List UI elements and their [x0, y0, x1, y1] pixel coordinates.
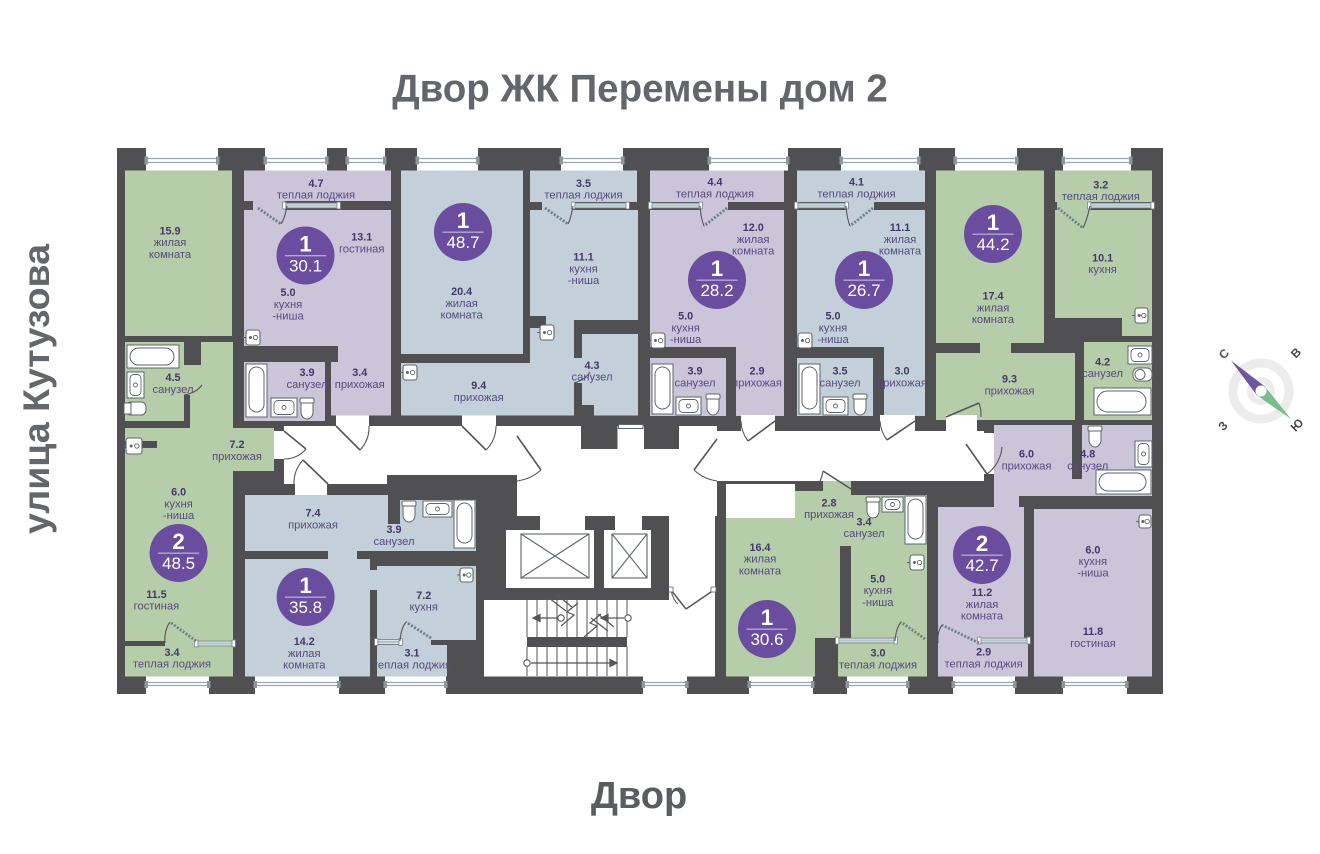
svg-text:4.4: 4.4 [707, 177, 722, 189]
svg-text:кухня: кухня [1079, 556, 1107, 568]
svg-text:3.2: 3.2 [1093, 179, 1108, 191]
svg-text:комната: комната [440, 310, 483, 322]
svg-text:1: 1 [457, 208, 469, 233]
svg-text:прихожая: прихожая [732, 377, 782, 389]
svg-text:кухня: кухня [409, 602, 437, 614]
svg-text:комната: комната [283, 660, 326, 672]
svg-text:13.1: 13.1 [351, 232, 372, 244]
svg-text:улица Кутузова: улица Кутузова [15, 243, 57, 534]
svg-text:комната: комната [961, 610, 1004, 622]
svg-text:20.4: 20.4 [451, 286, 472, 298]
svg-text:кухня: кухня [864, 585, 892, 597]
svg-text:30.6: 30.6 [750, 630, 783, 649]
svg-text:10.1: 10.1 [1092, 252, 1113, 264]
svg-text:-ниша: -ниша [1077, 568, 1109, 580]
svg-text:30.1: 30.1 [289, 257, 322, 276]
svg-text:3.9: 3.9 [386, 524, 401, 536]
svg-text:санузел: санузел [1082, 368, 1123, 380]
svg-text:жилая: жилая [445, 298, 478, 310]
svg-text:11.1: 11.1 [890, 222, 910, 234]
svg-text:3.9: 3.9 [299, 367, 314, 379]
svg-text:санузел: санузел [1067, 461, 1108, 473]
svg-text:теплая лоджия: теплая лоджия [945, 659, 1023, 671]
svg-text:Двор ЖК Перемены дом 2: Двор ЖК Перемены дом 2 [392, 68, 888, 111]
svg-text:4.2: 4.2 [1095, 356, 1110, 368]
svg-text:42.7: 42.7 [965, 556, 998, 575]
svg-text:7.2: 7.2 [416, 590, 431, 602]
svg-text:11.2: 11.2 [972, 587, 992, 599]
svg-text:теплая лоджия: теплая лоджия [544, 190, 622, 202]
svg-text:санузел: санузел [820, 377, 861, 389]
svg-text:9.4: 9.4 [471, 380, 486, 392]
svg-text:санузел: санузел [844, 528, 885, 540]
svg-text:4.5: 4.5 [165, 372, 180, 384]
svg-text:-ниша: -ниша [670, 334, 702, 346]
svg-text:28.2: 28.2 [700, 281, 733, 300]
svg-text:2.8: 2.8 [821, 497, 836, 509]
svg-text:теплая лоджия: теплая лоджия [676, 189, 754, 201]
svg-text:4.1: 4.1 [849, 177, 864, 189]
svg-text:-ниша: -ниша [568, 275, 600, 287]
svg-text:-ниша: -ниша [272, 311, 304, 323]
svg-text:11.1: 11.1 [573, 252, 593, 264]
svg-text:2.9: 2.9 [976, 647, 991, 659]
svg-text:кухня: кухня [1088, 264, 1116, 276]
svg-text:-ниша: -ниша [862, 597, 894, 609]
svg-text:комната: комната [739, 565, 782, 577]
svg-text:3.4: 3.4 [856, 516, 871, 528]
svg-text:6.0: 6.0 [171, 487, 186, 499]
svg-text:6.0: 6.0 [1085, 544, 1100, 556]
svg-text:кухня: кухня [671, 323, 699, 335]
svg-text:11.5: 11.5 [146, 589, 166, 601]
svg-text:комната: комната [732, 245, 775, 257]
svg-text:5.0: 5.0 [678, 311, 693, 323]
svg-text:4.3: 4.3 [584, 360, 599, 372]
svg-text:жилая: жилая [884, 234, 917, 246]
svg-text:1: 1 [987, 210, 999, 235]
svg-text:жилая: жилая [154, 237, 187, 249]
svg-text:9.3: 9.3 [1002, 374, 1017, 386]
svg-text:12.0: 12.0 [743, 222, 764, 234]
svg-text:прихожая: прихожая [212, 451, 262, 463]
svg-text:прихожая: прихожая [1002, 461, 1052, 473]
svg-text:48.5: 48.5 [162, 554, 195, 573]
svg-text:3.4: 3.4 [164, 647, 179, 659]
svg-text:5.0: 5.0 [280, 287, 295, 299]
svg-text:комната: комната [972, 314, 1015, 326]
svg-text:26.7: 26.7 [847, 281, 880, 300]
svg-text:кухня: кухня [164, 498, 192, 510]
svg-text:5.0: 5.0 [870, 573, 885, 585]
svg-text:гостиная: гостиная [134, 601, 179, 613]
svg-text:-ниша: -ниша [817, 334, 849, 346]
svg-text:15.9: 15.9 [159, 225, 180, 237]
svg-text:3.5: 3.5 [576, 178, 591, 190]
svg-text:прихожая: прихожая [985, 385, 1035, 397]
svg-text:комната: комната [879, 245, 922, 257]
svg-text:санузел: санузел [374, 536, 415, 548]
svg-text:4.7: 4.7 [308, 178, 323, 190]
svg-text:прихожая: прихожая [335, 379, 385, 391]
svg-text:теплая лоджия: теплая лоджия [277, 190, 355, 202]
svg-text:-ниша: -ниша [163, 510, 195, 522]
svg-text:комната: комната [149, 249, 192, 261]
svg-text:теплая лоджия: теплая лоджия [373, 659, 451, 671]
svg-text:3.9: 3.9 [687, 366, 702, 378]
svg-text:2.9: 2.9 [749, 366, 764, 378]
svg-text:теплая лоджия: теплая лоджия [817, 189, 895, 201]
svg-text:гостиная: гостиная [339, 243, 384, 255]
svg-text:17.4: 17.4 [982, 291, 1003, 303]
svg-text:7.2: 7.2 [229, 439, 244, 451]
svg-text:прихожая: прихожая [454, 392, 504, 404]
svg-text:жилая: жилая [966, 599, 999, 611]
svg-text:теплая лоджия: теплая лоджия [133, 659, 211, 671]
svg-text:1: 1 [858, 256, 870, 281]
svg-text:1: 1 [299, 232, 311, 257]
svg-text:санузел: санузел [572, 372, 613, 384]
svg-text:2: 2 [172, 529, 184, 554]
svg-text:3.1: 3.1 [404, 648, 419, 660]
svg-text:кухня: кухня [819, 323, 847, 335]
svg-text:жилая: жилая [288, 648, 321, 660]
svg-text:35.8: 35.8 [289, 598, 322, 617]
svg-text:6.0: 6.0 [1019, 449, 1034, 461]
svg-text:1: 1 [299, 573, 311, 598]
svg-text:3.4: 3.4 [352, 367, 367, 379]
svg-text:прихожая: прихожая [288, 519, 338, 531]
svg-text:санузел: санузел [675, 377, 716, 389]
svg-text:гостиная: гостиная [1070, 638, 1115, 650]
svg-text:1: 1 [711, 256, 723, 281]
svg-text:кухня: кухня [569, 263, 597, 275]
svg-text:14.2: 14.2 [294, 636, 315, 648]
svg-text:1: 1 [761, 605, 773, 630]
svg-text:прихожая: прихожая [804, 509, 854, 521]
svg-text:теплая лоджия: теплая лоджия [1062, 191, 1140, 203]
svg-text:жилая: жилая [737, 234, 770, 246]
svg-text:2: 2 [976, 531, 988, 556]
svg-text:48.7: 48.7 [446, 233, 479, 252]
svg-text:11.8: 11.8 [1083, 626, 1103, 638]
svg-text:7.4: 7.4 [305, 508, 320, 520]
svg-text:кухня: кухня [274, 299, 302, 311]
svg-text:3.5: 3.5 [832, 366, 847, 378]
svg-text:санузел: санузел [153, 384, 194, 396]
svg-text:теплая лоджия: теплая лоджия [839, 659, 917, 671]
svg-text:прихожая: прихожая [877, 377, 927, 389]
svg-text:санузел: санузел [287, 379, 328, 391]
svg-text:Двор: Двор [591, 775, 687, 817]
svg-text:5.0: 5.0 [825, 311, 840, 323]
svg-text:44.2: 44.2 [976, 235, 1009, 254]
svg-text:3.0: 3.0 [894, 366, 909, 378]
svg-text:жилая: жилая [977, 302, 1010, 314]
svg-text:жилая: жилая [744, 554, 777, 566]
svg-text:3.0: 3.0 [870, 648, 885, 660]
svg-text:16.4: 16.4 [749, 542, 770, 554]
svg-text:4.8: 4.8 [1080, 449, 1095, 461]
